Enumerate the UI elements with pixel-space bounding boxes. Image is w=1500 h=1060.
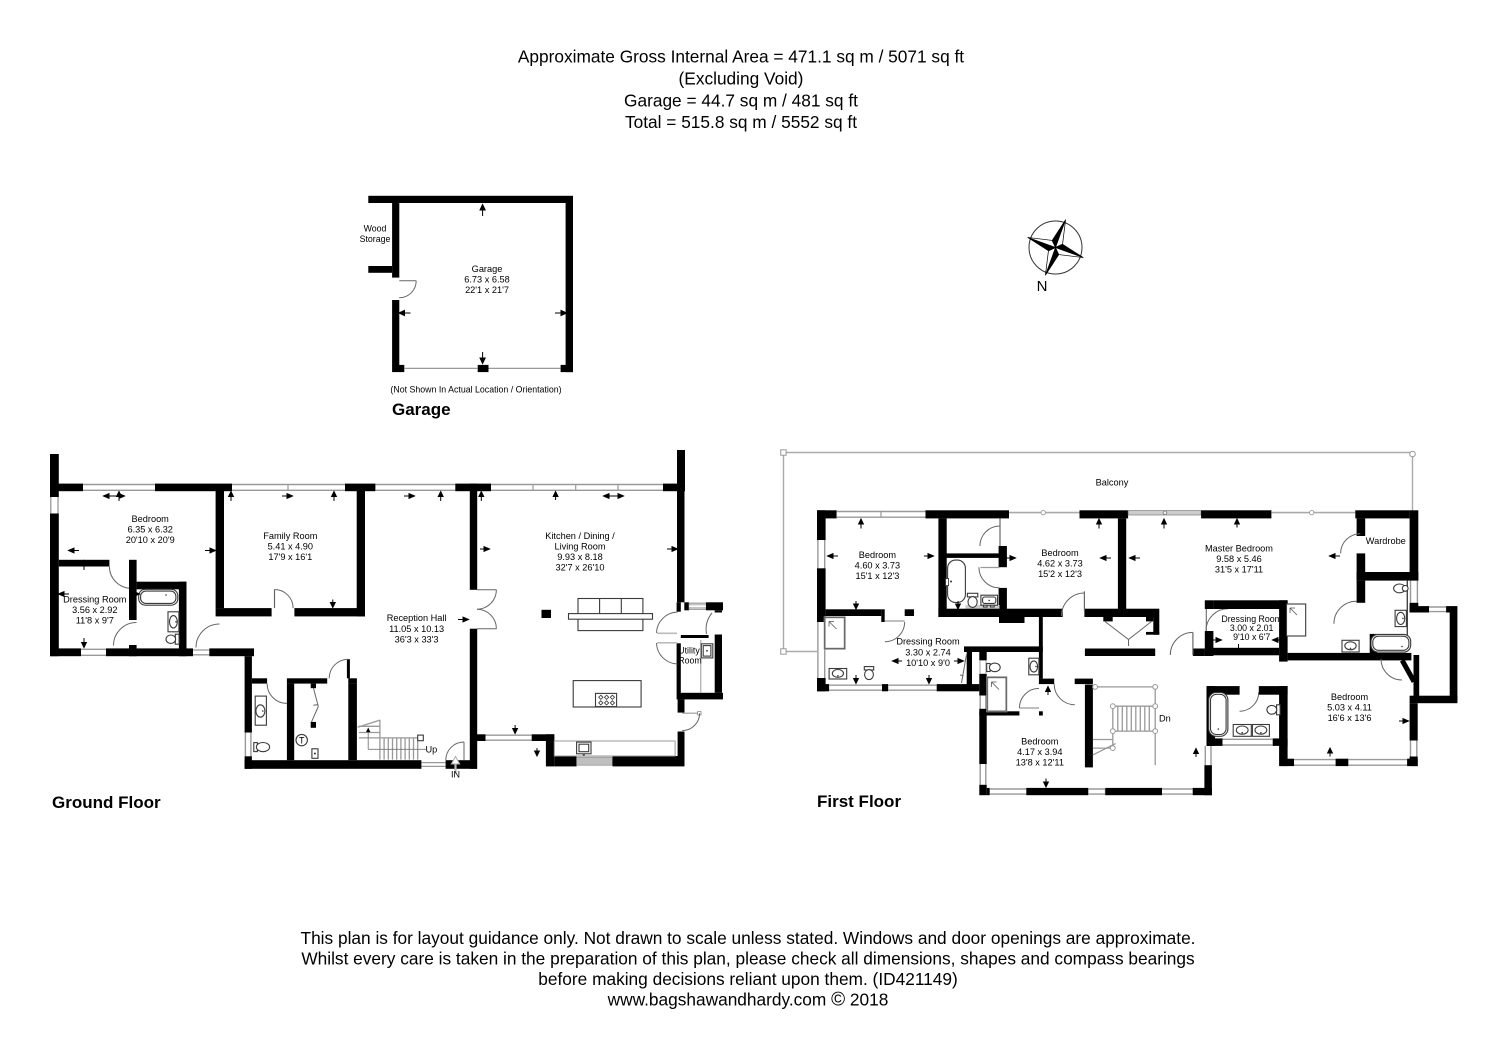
svg-text:11'8 x 9'7: 11'8 x 9'7: [76, 616, 114, 626]
svg-text:Bedroom: Bedroom: [132, 514, 170, 524]
svg-text:Dressing Room: Dressing Room: [63, 595, 127, 605]
svg-text:Wood: Wood: [364, 224, 387, 234]
svg-text:Total = 515.8 sq m / 5552 sq f: Total = 515.8 sq m / 5552 sq ft: [625, 112, 857, 132]
svg-text:4.60 x 3.73: 4.60 x 3.73: [855, 561, 900, 571]
svg-text:20'10 x 20'9: 20'10 x 20'9: [126, 535, 175, 545]
svg-text:Master Bedroom: Master Bedroom: [1205, 544, 1273, 554]
svg-text:5.03 x 4.11: 5.03 x 4.11: [1327, 703, 1372, 713]
svg-text:Dressing Room: Dressing Room: [896, 637, 960, 647]
svg-text:4.17 x 3.94: 4.17 x 3.94: [1017, 747, 1062, 757]
svg-text:Up: Up: [426, 745, 438, 755]
svg-text:Wardrobe: Wardrobe: [1366, 536, 1406, 546]
svg-text:9.58 x 5.46: 9.58 x 5.46: [1216, 554, 1261, 564]
svg-text:First Floor: First Floor: [817, 792, 901, 811]
svg-text:11.05 x 10.13: 11.05 x 10.13: [389, 624, 444, 634]
svg-text:9'10 x 6'7: 9'10 x 6'7: [1233, 632, 1270, 642]
svg-text:This plan is for layout guidan: This plan is for layout guidance only. N…: [301, 928, 1196, 948]
svg-text:Whilst every care is taken in: Whilst every care is taken in the prepar…: [301, 949, 1195, 969]
svg-text:Room: Room: [678, 656, 701, 666]
svg-text:IN: IN: [451, 770, 460, 780]
svg-text:www.bagshawandhardy.com © 2018: www.bagshawandhardy.com © 2018: [607, 990, 889, 1011]
svg-text:Bedroom: Bedroom: [1021, 736, 1059, 746]
svg-text:Dn: Dn: [1159, 714, 1171, 724]
svg-text:N: N: [1037, 278, 1048, 295]
svg-text:9.93 x 8.18: 9.93 x 8.18: [557, 552, 602, 562]
svg-text:6.73 x 6.58: 6.73 x 6.58: [464, 275, 509, 285]
svg-text:Bedroom: Bedroom: [1041, 548, 1079, 558]
svg-text:(Excluding Void): (Excluding Void): [679, 69, 804, 89]
svg-text:10'10 x 9'0: 10'10 x 9'0: [906, 658, 950, 668]
svg-text:Ground Floor: Ground Floor: [52, 793, 161, 812]
svg-text:T: T: [299, 736, 305, 746]
svg-text:32'7 x 26'10: 32'7 x 26'10: [556, 563, 605, 573]
svg-text:Utility: Utility: [678, 646, 700, 656]
svg-text:5.41 x 4.90: 5.41 x 4.90: [268, 542, 313, 552]
svg-text:Garage: Garage: [472, 264, 503, 274]
svg-text:3.30 x 2.74: 3.30 x 2.74: [905, 647, 950, 657]
svg-text:15'2 x 12'3: 15'2 x 12'3: [1038, 569, 1082, 579]
svg-text:13'8 x 12'11: 13'8 x 12'11: [1016, 758, 1064, 768]
svg-text:Bedroom: Bedroom: [1331, 692, 1369, 702]
svg-text:36'3 x 33'3: 36'3 x 33'3: [395, 634, 439, 644]
svg-text:15'1 x 12'3: 15'1 x 12'3: [855, 571, 899, 581]
svg-text:31'5 x 17'11: 31'5 x 17'11: [1215, 565, 1263, 575]
svg-text:Balcony: Balcony: [1096, 478, 1129, 488]
svg-text:Kitchen / Dining /: Kitchen / Dining /: [545, 531, 615, 541]
svg-text:Bedroom: Bedroom: [859, 550, 897, 560]
svg-text:Garage: Garage: [392, 400, 451, 419]
svg-text:Reception Hall: Reception Hall: [387, 613, 447, 623]
svg-text:Garage = 44.7 sq m / 481 sq ft: Garage = 44.7 sq m / 481 sq ft: [624, 91, 858, 111]
svg-text:6.35 x 6.32: 6.35 x 6.32: [127, 524, 172, 534]
svg-text:(Not Shown In Actual Location: (Not Shown In Actual Location / Orientat…: [390, 385, 561, 395]
svg-text:Living Room: Living Room: [554, 542, 605, 552]
svg-text:3.56 x 2.92: 3.56 x 2.92: [72, 605, 117, 615]
svg-text:Approximate Gross Internal Are: Approximate Gross Internal Area = 471.1 …: [518, 47, 964, 67]
svg-text:4.62 x 3.73: 4.62 x 3.73: [1037, 559, 1082, 569]
svg-text:16'6 x 13'6: 16'6 x 13'6: [1328, 713, 1372, 723]
svg-text:17'9 x 16'1: 17'9 x 16'1: [268, 552, 312, 562]
svg-text:22'1 x 21'7: 22'1 x 21'7: [465, 285, 509, 295]
svg-text:Storage: Storage: [360, 234, 391, 244]
svg-text:Family Room: Family Room: [263, 531, 317, 541]
svg-text:before making decisions relian: before making decisions reliant upon the…: [538, 969, 957, 989]
